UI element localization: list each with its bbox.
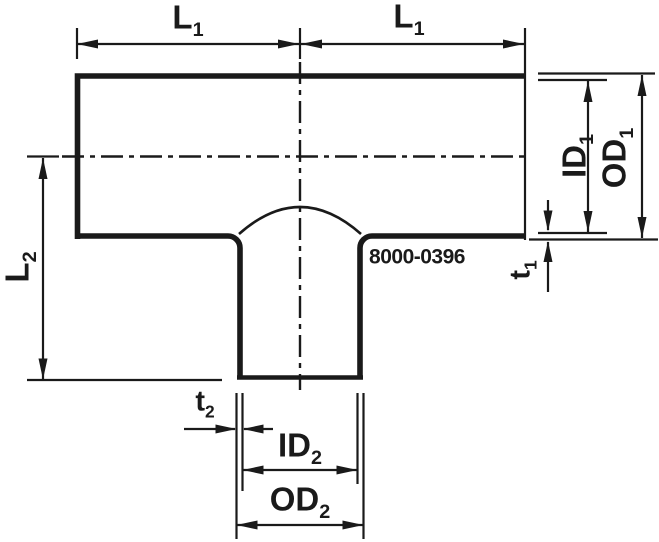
tee-fitting-drawing: L1 L1 L2 ID1 OD1 t1 t2 ID2 OD2 8000-0396 xyxy=(0,0,659,542)
centerlines xyxy=(62,62,524,390)
od2-arrow-west xyxy=(237,521,258,530)
t1-arrow-down xyxy=(544,211,553,232)
od1-label: OD1 xyxy=(598,128,631,189)
l2-arrow-down xyxy=(39,359,48,380)
l1-right-arrow-east xyxy=(503,40,524,49)
dimension-lines xyxy=(43,44,642,525)
l1-right-label: L1 xyxy=(393,0,424,33)
t2-arrow-east xyxy=(216,425,237,434)
l2-arrow-up xyxy=(39,158,48,179)
od1-arrow-up xyxy=(638,75,647,96)
l2-label: L2 xyxy=(1,251,34,282)
extension-lines xyxy=(27,28,658,539)
l1-left-label: L1 xyxy=(172,1,203,34)
arrowheads xyxy=(39,40,647,530)
l1-right-arrow-west xyxy=(301,40,322,49)
id2-label: ID2 xyxy=(278,429,322,462)
od2-label: OD2 xyxy=(270,483,331,516)
part-number: 8000-0396 xyxy=(369,247,465,268)
drawing-geometry xyxy=(0,0,659,542)
id1-arrow-up xyxy=(584,81,593,102)
t2-arrow-west xyxy=(243,425,264,434)
od2-arrow-east xyxy=(343,521,364,530)
t1-label: t1 xyxy=(507,260,536,279)
pipe-bottom-left-branch-left-wall xyxy=(75,236,240,377)
id2-arrow-west xyxy=(243,466,264,475)
l1-left-arrow-east xyxy=(278,40,299,49)
l1-left-arrow-west xyxy=(77,40,98,49)
id1-arrow-down xyxy=(584,211,593,232)
id2-arrow-east xyxy=(337,466,358,475)
t2-label: t2 xyxy=(195,388,214,417)
t1-arrow-up xyxy=(544,241,553,262)
id1-label: ID1 xyxy=(558,134,591,178)
od1-arrow-down xyxy=(638,217,647,238)
